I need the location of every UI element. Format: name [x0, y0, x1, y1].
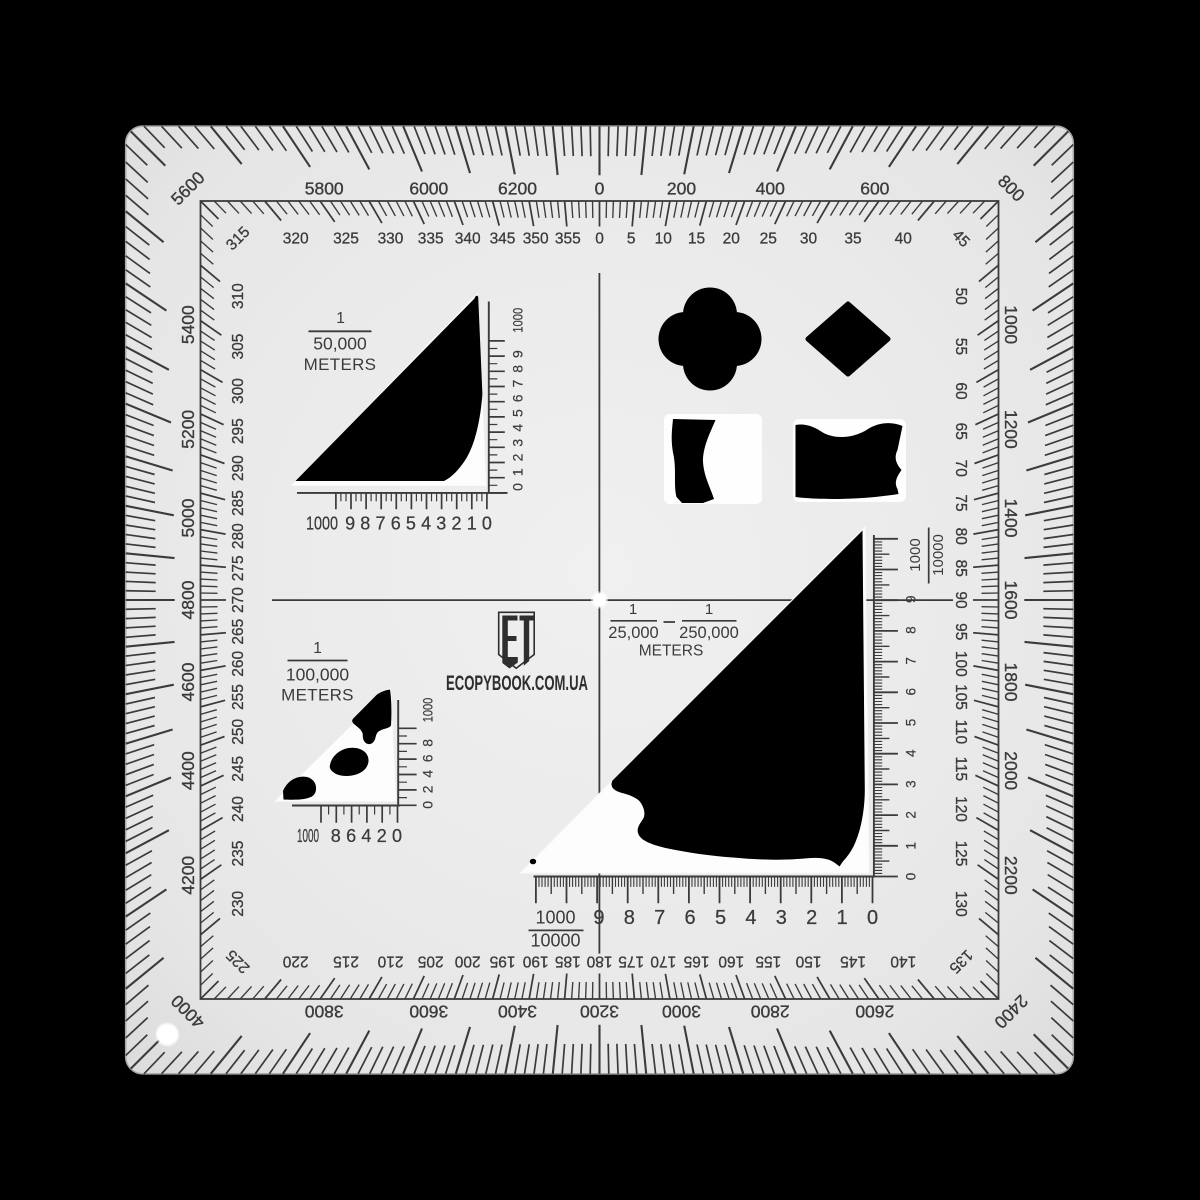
- svg-text:4400: 4400: [178, 751, 198, 790]
- svg-text:1000: 1000: [306, 514, 338, 534]
- svg-text:2000: 2000: [1001, 751, 1021, 790]
- svg-text:305: 305: [230, 334, 247, 360]
- svg-text:65: 65: [952, 423, 969, 440]
- svg-text:0: 0: [595, 178, 605, 198]
- svg-text:1: 1: [705, 601, 713, 618]
- svg-text:2800: 2800: [750, 1002, 789, 1022]
- svg-text:6: 6: [685, 907, 696, 929]
- svg-text:2: 2: [510, 453, 526, 461]
- svg-text:120: 120: [952, 796, 969, 822]
- svg-text:5: 5: [406, 514, 416, 534]
- svg-text:1: 1: [510, 468, 526, 476]
- svg-text:1: 1: [313, 640, 322, 657]
- svg-text:7: 7: [510, 379, 526, 387]
- svg-text:175: 175: [618, 952, 644, 969]
- svg-text:265: 265: [230, 619, 247, 645]
- svg-text:25: 25: [760, 231, 777, 248]
- svg-text:310: 310: [230, 283, 247, 309]
- svg-text:1: 1: [629, 601, 637, 618]
- svg-text:2200: 2200: [1001, 856, 1021, 895]
- svg-text:7: 7: [654, 907, 665, 929]
- svg-text:150: 150: [795, 952, 821, 969]
- svg-text:5200: 5200: [178, 410, 198, 449]
- svg-text:260: 260: [230, 650, 247, 676]
- svg-text:130: 130: [952, 891, 969, 917]
- svg-text:2: 2: [420, 785, 436, 793]
- svg-text:4: 4: [510, 424, 526, 432]
- svg-text:95: 95: [952, 623, 969, 640]
- svg-text:40: 40: [895, 231, 913, 248]
- svg-text:3800: 3800: [304, 1002, 343, 1022]
- svg-text:210: 210: [377, 952, 403, 969]
- svg-text:0: 0: [482, 514, 492, 534]
- svg-text:275: 275: [230, 555, 247, 581]
- svg-text:1: 1: [837, 907, 848, 929]
- svg-text:3200: 3200: [580, 1002, 619, 1022]
- svg-text:140: 140: [890, 952, 916, 969]
- svg-text:80: 80: [952, 528, 969, 546]
- svg-text:0: 0: [867, 907, 878, 929]
- svg-text:200: 200: [667, 178, 696, 198]
- svg-text:5800: 5800: [305, 178, 344, 198]
- svg-text:1000: 1000: [510, 308, 526, 333]
- svg-text:235: 235: [230, 841, 247, 867]
- svg-text:3600: 3600: [409, 1002, 448, 1022]
- svg-text:295: 295: [230, 418, 247, 444]
- svg-text:205: 205: [418, 952, 444, 969]
- svg-text:195: 195: [490, 952, 516, 969]
- svg-text:50: 50: [952, 288, 969, 306]
- svg-text:240: 240: [230, 796, 247, 822]
- svg-text:20: 20: [723, 231, 741, 248]
- svg-text:0: 0: [510, 483, 526, 491]
- svg-text:190: 190: [522, 952, 548, 969]
- svg-text:330: 330: [378, 231, 404, 248]
- svg-text:8: 8: [904, 626, 919, 634]
- svg-text:10000: 10000: [930, 534, 947, 576]
- svg-text:0: 0: [392, 826, 402, 846]
- svg-text:4: 4: [361, 826, 371, 846]
- svg-text:290: 290: [230, 455, 247, 481]
- svg-text:30: 30: [800, 231, 818, 248]
- svg-text:METERS: METERS: [639, 643, 704, 660]
- svg-text:9: 9: [510, 350, 526, 358]
- svg-text:6: 6: [510, 394, 526, 402]
- svg-text:355: 355: [555, 231, 581, 248]
- svg-text:230: 230: [230, 890, 247, 916]
- svg-text:220: 220: [282, 952, 308, 969]
- svg-text:165: 165: [684, 952, 710, 969]
- svg-text:215: 215: [333, 952, 359, 969]
- svg-text:60: 60: [952, 382, 969, 400]
- svg-text:400: 400: [756, 178, 785, 198]
- svg-text:15: 15: [688, 231, 705, 248]
- svg-text:285: 285: [230, 490, 247, 516]
- svg-text:335: 335: [418, 231, 444, 248]
- svg-text:255: 255: [230, 684, 247, 710]
- svg-text:345: 345: [490, 231, 516, 248]
- svg-text:270: 270: [230, 587, 247, 613]
- svg-text:55: 55: [952, 338, 969, 355]
- svg-text:7: 7: [375, 514, 385, 534]
- svg-text:2: 2: [904, 811, 919, 819]
- svg-text:1200: 1200: [1001, 410, 1021, 449]
- svg-text:115: 115: [952, 756, 969, 781]
- svg-text:5: 5: [904, 719, 919, 727]
- svg-text:6200: 6200: [498, 178, 537, 198]
- svg-text:5: 5: [510, 409, 526, 417]
- svg-text:5400: 5400: [178, 305, 198, 344]
- svg-text:ECOPYBOOK.COM.UA: ECOPYBOOK.COM.UA: [446, 672, 588, 695]
- svg-text:180: 180: [586, 952, 612, 969]
- svg-text:320: 320: [283, 231, 309, 248]
- svg-text:5000: 5000: [178, 498, 198, 537]
- svg-text:METERS: METERS: [304, 355, 377, 374]
- svg-text:6: 6: [346, 826, 356, 846]
- svg-text:4600: 4600: [178, 662, 198, 701]
- svg-text:600: 600: [860, 178, 889, 198]
- svg-text:85: 85: [952, 560, 969, 577]
- svg-text:4: 4: [421, 514, 431, 534]
- svg-text:4: 4: [904, 749, 919, 757]
- svg-text:50,000: 50,000: [313, 334, 367, 354]
- svg-text:9: 9: [593, 907, 604, 929]
- svg-text:280: 280: [230, 523, 247, 549]
- svg-text:1000: 1000: [420, 698, 436, 723]
- svg-text:8: 8: [624, 907, 635, 929]
- svg-text:340: 340: [455, 231, 481, 248]
- svg-text:100,000: 100,000: [286, 665, 350, 685]
- svg-text:2: 2: [451, 514, 461, 534]
- svg-text:245: 245: [230, 756, 247, 782]
- svg-text:200: 200: [454, 952, 480, 969]
- svg-text:4: 4: [745, 907, 756, 929]
- svg-text:5: 5: [715, 907, 726, 929]
- svg-text:1000: 1000: [535, 908, 575, 928]
- svg-text:0: 0: [595, 231, 604, 248]
- svg-text:6: 6: [904, 688, 919, 696]
- svg-text:6: 6: [420, 754, 436, 762]
- svg-text:3: 3: [776, 907, 787, 929]
- svg-text:9: 9: [904, 596, 919, 604]
- svg-text:8: 8: [331, 826, 341, 846]
- svg-text:75: 75: [952, 494, 969, 511]
- svg-text:3: 3: [510, 439, 526, 447]
- svg-text:1000: 1000: [1001, 305, 1021, 344]
- svg-text:3000: 3000: [662, 1002, 701, 1022]
- svg-text:100: 100: [952, 651, 969, 677]
- svg-text:155: 155: [755, 952, 781, 969]
- svg-text:METERS: METERS: [281, 686, 354, 705]
- svg-text:145: 145: [840, 952, 866, 969]
- svg-text:0: 0: [420, 801, 436, 809]
- svg-text:70: 70: [952, 460, 969, 478]
- svg-text:35: 35: [844, 231, 861, 248]
- svg-text:5: 5: [627, 231, 636, 248]
- svg-text:1800: 1800: [1001, 663, 1021, 702]
- svg-text:9: 9: [345, 514, 355, 534]
- svg-text:8: 8: [360, 514, 370, 534]
- svg-text:1: 1: [904, 842, 919, 850]
- svg-text:8: 8: [510, 365, 526, 373]
- svg-text:160: 160: [718, 952, 744, 969]
- svg-text:325: 325: [333, 231, 359, 248]
- svg-text:3400: 3400: [498, 1002, 537, 1022]
- svg-text:3: 3: [904, 780, 919, 788]
- svg-text:300: 300: [230, 378, 247, 404]
- svg-text:110: 110: [952, 719, 969, 744]
- svg-text:1400: 1400: [1001, 499, 1021, 538]
- svg-text:2: 2: [377, 826, 387, 846]
- svg-text:185: 185: [555, 952, 581, 969]
- svg-text:1000: 1000: [297, 826, 319, 846]
- svg-text:125: 125: [952, 841, 969, 867]
- svg-text:10000: 10000: [530, 931, 580, 951]
- svg-text:250: 250: [230, 718, 247, 744]
- svg-text:7: 7: [904, 657, 919, 665]
- svg-text:105: 105: [952, 684, 969, 710]
- svg-text:170: 170: [650, 952, 676, 969]
- svg-text:4200: 4200: [178, 856, 198, 895]
- svg-text:90: 90: [952, 591, 969, 609]
- svg-text:6000: 6000: [409, 178, 448, 198]
- svg-text:1000: 1000: [907, 538, 924, 571]
- svg-text:6: 6: [391, 514, 401, 534]
- svg-text:1: 1: [336, 310, 345, 327]
- svg-text:25,000: 25,000: [608, 624, 658, 642]
- svg-text:350: 350: [523, 231, 549, 248]
- svg-text:8: 8: [420, 739, 436, 747]
- svg-text:0: 0: [904, 873, 919, 881]
- svg-text:4: 4: [420, 770, 436, 778]
- svg-text:2600: 2600: [855, 1002, 894, 1022]
- svg-text:2: 2: [806, 907, 817, 929]
- svg-text:1600: 1600: [1001, 581, 1021, 620]
- svg-text:250,000: 250,000: [679, 624, 739, 642]
- svg-text:4800: 4800: [178, 580, 198, 619]
- svg-text:1: 1: [467, 514, 477, 534]
- svg-text:10: 10: [655, 231, 673, 248]
- svg-text:3: 3: [436, 514, 446, 534]
